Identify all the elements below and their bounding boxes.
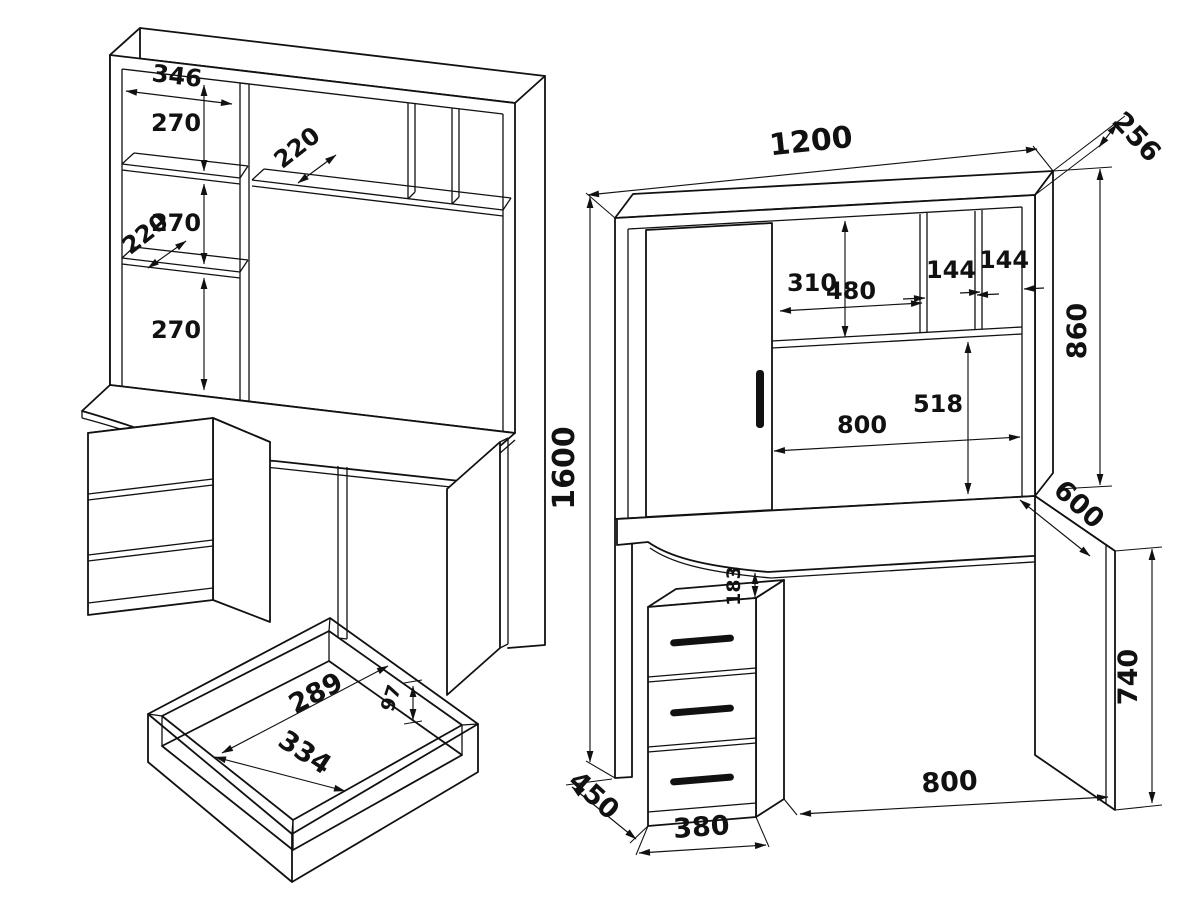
box-view-dimensions: 289 334 97 xyxy=(215,666,422,791)
dim-label-overall-width: 1200 xyxy=(768,120,855,164)
dim-label-shelf-gap-3: 270 xyxy=(151,316,201,344)
dim-label-slot-width-2: 144 xyxy=(979,246,1029,274)
dim-label-shelf-gap-1: 270 xyxy=(151,109,201,137)
front-view-desk: 1200 256 1600 860 740 310 480 xyxy=(547,106,1167,855)
dim-label-hutch-height: 860 xyxy=(1062,303,1093,359)
front-left-panel xyxy=(615,518,632,778)
dim-label-knee-width: 800 xyxy=(921,766,979,800)
front-hutch-door xyxy=(646,223,772,517)
dim-label-box-inner-height: 97 xyxy=(377,682,406,714)
box-inner-rim xyxy=(162,631,462,820)
front-drawer-cabinet xyxy=(648,580,784,826)
front-right-leg-panel xyxy=(1035,496,1115,810)
dim-label-box-inner-length: 334 xyxy=(273,725,337,782)
dim-label-box-inner-width: 289 xyxy=(284,667,348,721)
front-hutch-right-side xyxy=(1035,171,1053,496)
dim-label-overall-height: 1600 xyxy=(547,426,582,510)
dim-label-desktop-cabinet-gap: 183 xyxy=(723,566,745,606)
dim-label-slot-width-1: 144 xyxy=(926,256,976,284)
dim-label-niche-height: 518 xyxy=(913,390,963,418)
dim-label-desk-height: 740 xyxy=(1113,649,1144,705)
iso-cabinet-front xyxy=(88,418,213,615)
dim-line-380 xyxy=(639,845,766,853)
iso-cabinet-side xyxy=(213,418,270,622)
iso-view-assembled-desk: 346 270 270 270 220 220 xyxy=(82,28,545,695)
drawer-box-view: 289 334 97 xyxy=(148,618,478,882)
dim-label-niche-width: 800 xyxy=(837,411,887,439)
assembly-diagram-page: 346 270 270 270 220 220 289 xyxy=(0,0,1200,900)
dim-label-cabinet-width: 380 xyxy=(672,810,730,845)
dim-label-top-depth: 256 xyxy=(1106,106,1167,168)
front-cabinet-side xyxy=(756,580,784,817)
dim-line-800-knee xyxy=(800,797,1108,814)
dim-label-shelf-opening-width: 480 xyxy=(826,277,876,305)
desk-assembly-drawing: 346 270 270 270 220 220 289 xyxy=(0,0,1200,900)
iso-drawer-cabinet xyxy=(88,418,270,622)
iso-center-support xyxy=(338,466,347,639)
door-handle xyxy=(756,370,764,428)
